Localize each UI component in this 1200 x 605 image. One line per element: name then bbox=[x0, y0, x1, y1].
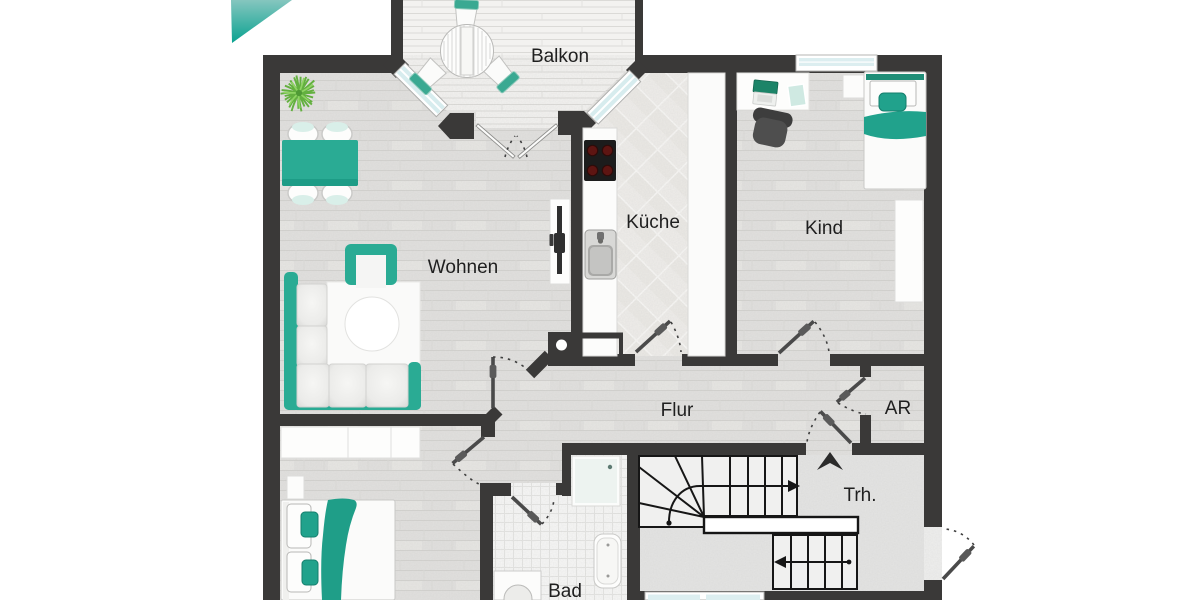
svg-text:Wohnen: Wohnen bbox=[428, 257, 498, 278]
svg-text:Bad: Bad bbox=[548, 581, 582, 600]
svg-text:Balkon: Balkon bbox=[531, 46, 589, 67]
svg-text:AR: AR bbox=[885, 398, 911, 419]
svg-text:Küche: Küche bbox=[626, 212, 680, 233]
svg-text:Flur: Flur bbox=[661, 400, 694, 421]
svg-text:Kind: Kind bbox=[805, 218, 843, 239]
svg-text:Trh.: Trh. bbox=[843, 485, 876, 506]
